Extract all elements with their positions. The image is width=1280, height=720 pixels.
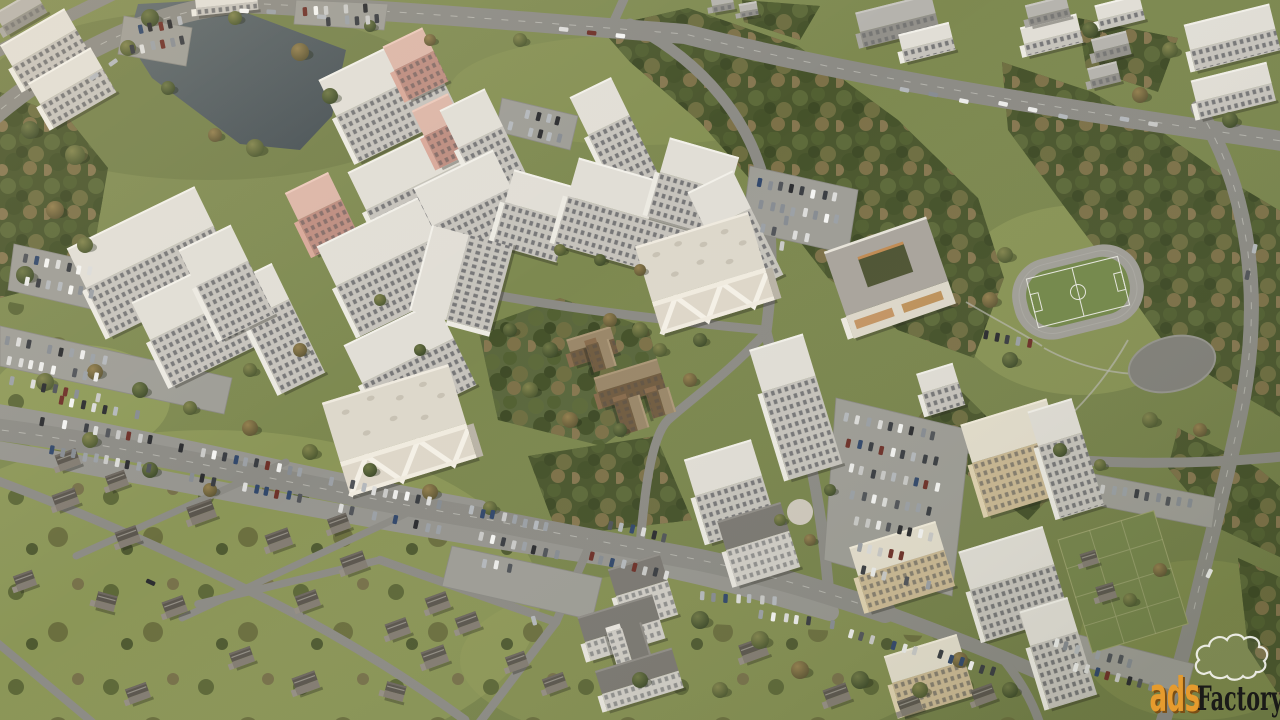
sunlight-overlay	[0, 0, 1280, 720]
aerial-render: ads ads Factory	[0, 0, 1280, 720]
watermark-ads-text: ads	[1150, 668, 1200, 720]
render-canvas: ads ads Factory	[0, 0, 1280, 720]
watermark-factory-text: Factory	[1197, 679, 1280, 719]
